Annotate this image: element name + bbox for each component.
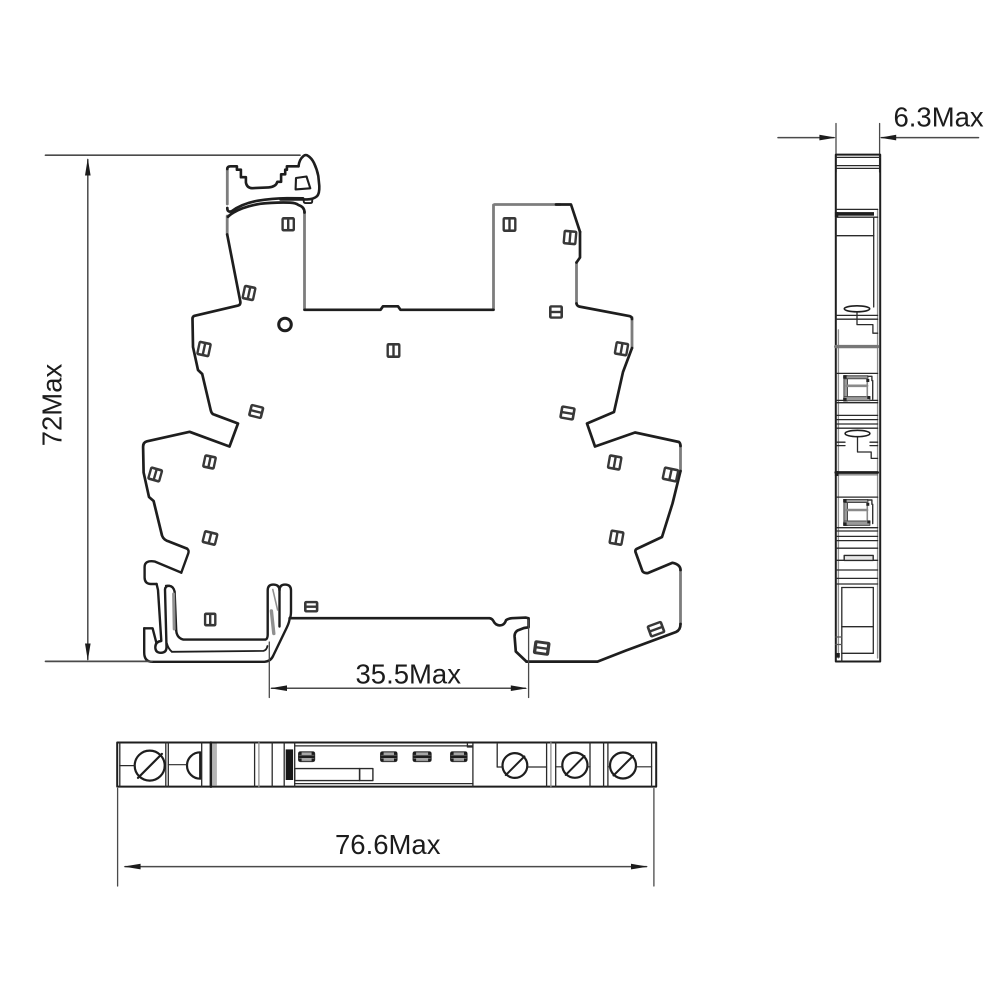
svg-text:76.6Max: 76.6Max: [335, 829, 441, 860]
svg-text:6.3Max: 6.3Max: [894, 102, 984, 133]
svg-text:35.5Max: 35.5Max: [356, 659, 462, 690]
svg-text:72Max: 72Max: [36, 363, 67, 446]
